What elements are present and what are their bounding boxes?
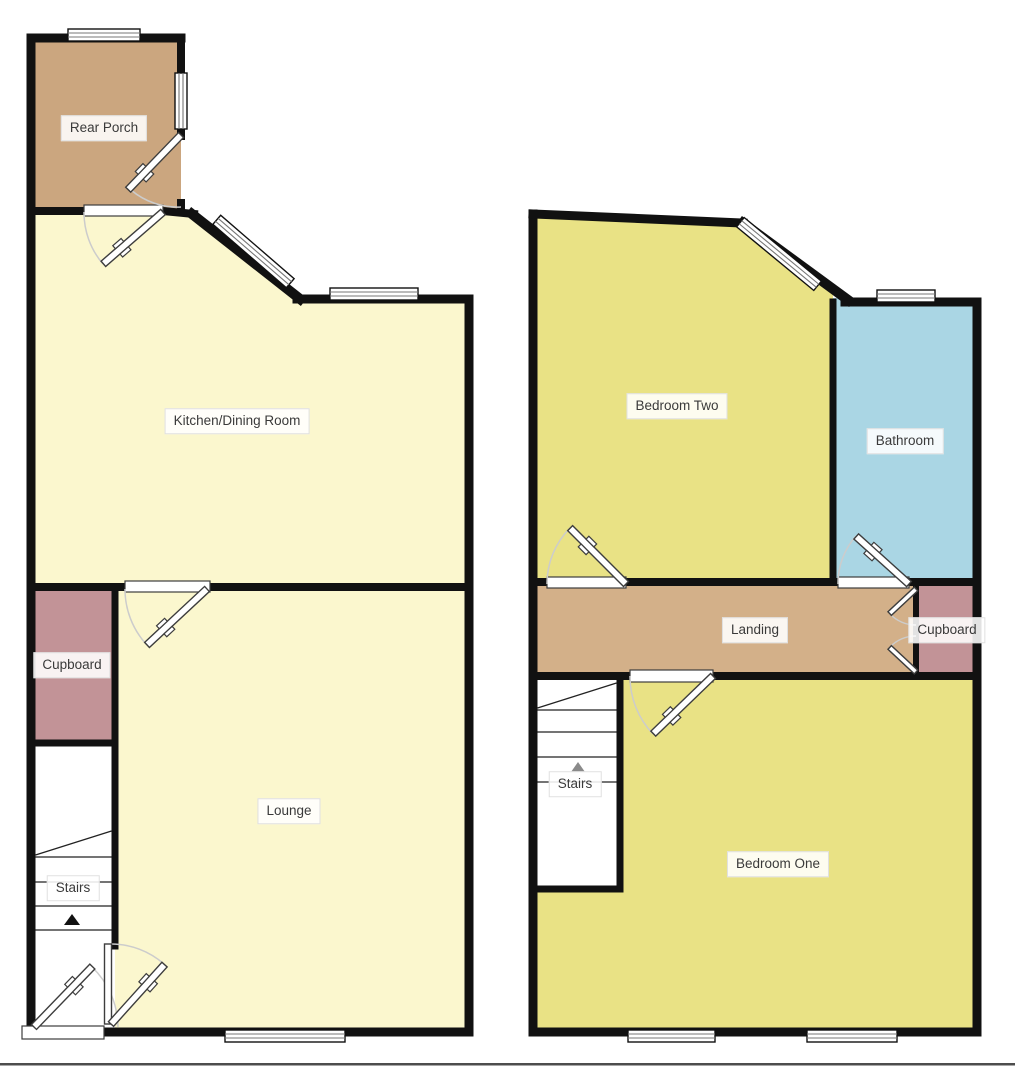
room-label-bathroom: Bathroom [867, 428, 944, 454]
door-opening-bedroom-two [547, 577, 626, 588]
room-label-lounge: Lounge [257, 798, 320, 824]
room-label-cupboard-first: Cupboard [908, 617, 985, 643]
door-front-leaf [29, 961, 98, 1032]
window-bathroom-top [877, 290, 935, 302]
stairs-ground-winder [36, 831, 112, 855]
door-hall-lounge-closed-leaf [105, 944, 112, 1024]
window-lounge-bottom [225, 1030, 345, 1042]
room-kitchen-dining [31, 211, 469, 587]
window-porch-top [68, 29, 140, 41]
room-label-cupboard-ground: Cupboard [33, 652, 110, 678]
door-opening-bedroom-one [630, 670, 713, 682]
door-opening-porch-kitchen [84, 205, 163, 216]
window-bedroom-one-left [628, 1030, 715, 1042]
room-label-landing: Landing [722, 617, 788, 643]
stairs-up-arrow-icon [64, 914, 80, 925]
floor-plan: Rear Porch Kitchen/Dining Room Cupboard … [0, 0, 1015, 1071]
page-bottom-rule [0, 1063, 1015, 1066]
window-kitchen-top [330, 288, 418, 300]
room-label-kitchen-dining: Kitchen/Dining Room [165, 408, 310, 434]
room-label-rear-porch: Rear Porch [61, 115, 147, 141]
room-label-stairs-first: Stairs [549, 771, 602, 797]
floor-plan-canvas [0, 0, 1015, 1071]
window-porch-right [175, 73, 187, 129]
window-bedroom-one-right [807, 1030, 897, 1042]
room-label-stairs-ground: Stairs [47, 875, 100, 901]
door-opening-kitchen-lounge [125, 581, 210, 592]
room-label-bedroom-one: Bedroom One [727, 851, 829, 877]
room-label-bedroom-two: Bedroom Two [626, 393, 727, 419]
